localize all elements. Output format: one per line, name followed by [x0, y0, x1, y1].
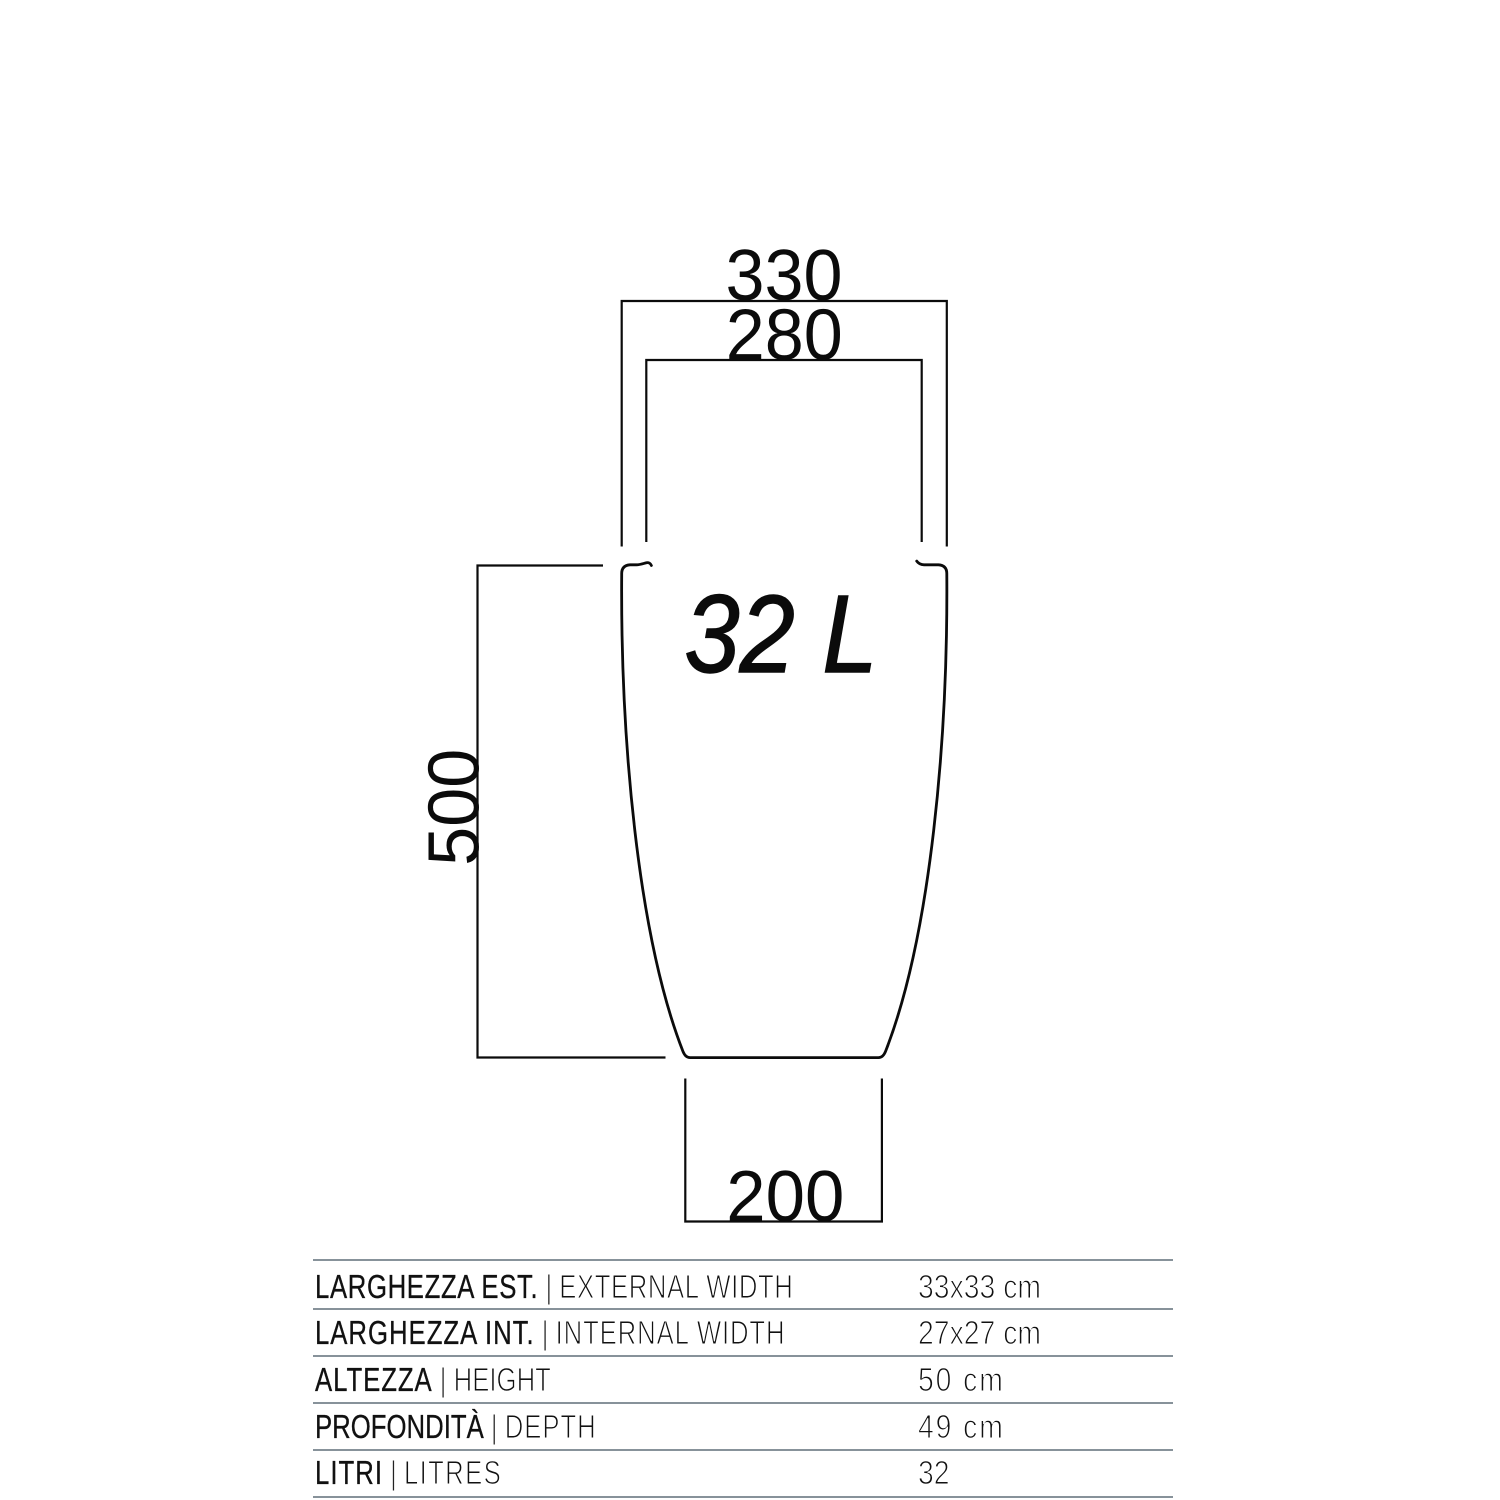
svg-text:280: 280 [726, 296, 843, 376]
svg-text:32 L: 32 L [685, 573, 878, 696]
svg-text:500: 500 [415, 749, 495, 866]
svg-text:200: 200 [726, 1157, 844, 1237]
